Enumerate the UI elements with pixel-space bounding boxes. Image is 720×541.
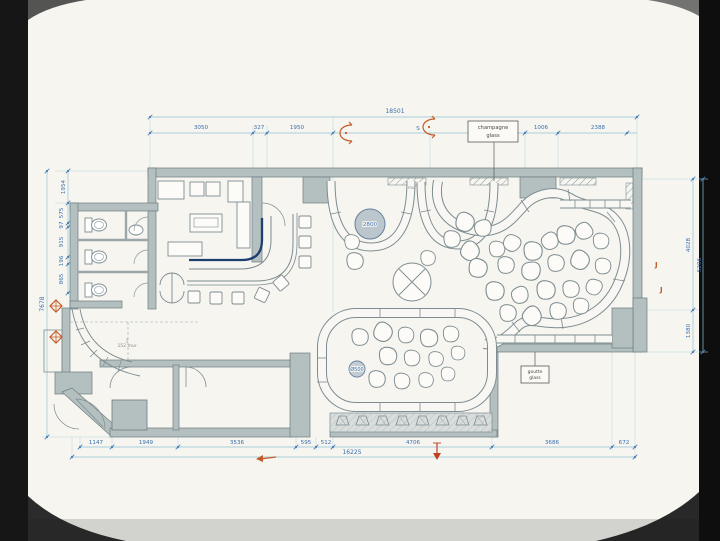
section-marker-j2: J — [659, 286, 663, 294]
wall-kitchen-left — [148, 168, 156, 208]
toilet-icon — [85, 218, 107, 232]
dim-right-1: 4028 — [686, 237, 692, 252]
dim-left-1: 1954 — [61, 179, 67, 194]
wall-wc-bottom — [70, 301, 122, 308]
photo-background — [0, 0, 720, 541]
dim-left-4: 915 — [59, 236, 65, 247]
photo-left-edge — [0, 0, 28, 541]
back-bar-unit — [237, 202, 250, 248]
dim-right-2: 5206 — [697, 257, 703, 272]
bar-stool — [299, 236, 311, 248]
section-marker-s-label: S — [416, 126, 420, 132]
wall-wc-right — [148, 211, 156, 309]
top-wall-note: mur — [408, 185, 416, 190]
hatch-strip-2 — [470, 178, 508, 185]
wall-wc-top — [70, 203, 158, 211]
circle-500-label: Ø500 — [350, 366, 363, 373]
kitchen-unit — [190, 182, 204, 196]
dim-bottom-total: 16225 — [342, 449, 361, 456]
dim-bottom-3: 3536 — [230, 440, 245, 446]
toilet-icon — [85, 283, 107, 297]
dim-bottom-1: 1147 — [89, 440, 104, 446]
pillar-bottom-right — [612, 308, 633, 348]
kitchen-table-2 — [168, 242, 202, 256]
scanned-floor-plan-photo: 18501 3050 327 1950 1006 2388 1147 1949 … — [0, 0, 720, 541]
section-marker-j1: J — [654, 261, 658, 269]
dim-bottom-6: 4706 — [406, 440, 421, 446]
dim-left-5: 196 — [59, 255, 65, 266]
dim-top-5: 2388 — [591, 125, 606, 131]
dim-right-3: 1380 — [686, 323, 692, 338]
room1-block — [112, 400, 147, 430]
hatch-strip-3 — [560, 178, 596, 185]
wall-wc-left — [70, 203, 78, 309]
pillar-top-mid — [303, 177, 330, 203]
wall-bottom-center — [290, 353, 310, 437]
champagne-label-line2: glass — [486, 133, 500, 139]
dim-top-total: 18501 — [385, 108, 404, 115]
kitchen-table — [190, 214, 222, 232]
bar-stool — [210, 292, 222, 304]
bar-stool — [188, 291, 200, 303]
wall-top — [148, 168, 642, 177]
goutte-label-line1: goutte — [528, 369, 543, 375]
dim-top-3: 1950 — [290, 125, 305, 131]
circle-2800-label: 2800 — [363, 222, 378, 228]
basin-icon — [129, 225, 143, 235]
dim-top-4: 1006 — [534, 125, 549, 131]
kitchen-counter — [158, 181, 184, 199]
bar-stool — [299, 256, 311, 268]
dim-bottom-5: 512 — [321, 440, 332, 446]
floor-plan-svg: 18501 3050 327 1950 1006 2388 1147 1949 … — [0, 0, 720, 541]
wall-right-bottom-chunk — [633, 298, 647, 352]
paper-bottom-band — [28, 519, 699, 541]
wall-rooms-divider — [173, 365, 179, 430]
terrace — [330, 413, 492, 432]
kitchen-unit — [228, 181, 243, 202]
dim-bottom-2: 1949 — [139, 440, 154, 446]
dim-left-total: 7678 — [39, 296, 46, 311]
dim-bottom-4: 595 — [301, 440, 312, 446]
bar-stool — [232, 292, 244, 304]
dim-top-2: 327 — [254, 125, 265, 131]
dim-bottom-8: 672 — [619, 440, 630, 446]
bar-stool — [299, 216, 311, 228]
dim-left-6: 865 — [59, 273, 65, 284]
dim-bottom-7: 3686 — [545, 440, 560, 446]
dim-left-2: 575 — [59, 207, 65, 218]
toilet-icon — [85, 250, 107, 264]
dim-top-1: 3050 — [194, 125, 209, 131]
champagne-label-line1: champagne — [478, 125, 509, 131]
kitchen-unit — [206, 182, 220, 196]
wall-left-lower — [62, 308, 70, 374]
dim-left-3: 97 — [59, 221, 65, 229]
goutte-label-line2: glass — [529, 375, 541, 381]
wall-note: 152 mur — [117, 343, 136, 349]
